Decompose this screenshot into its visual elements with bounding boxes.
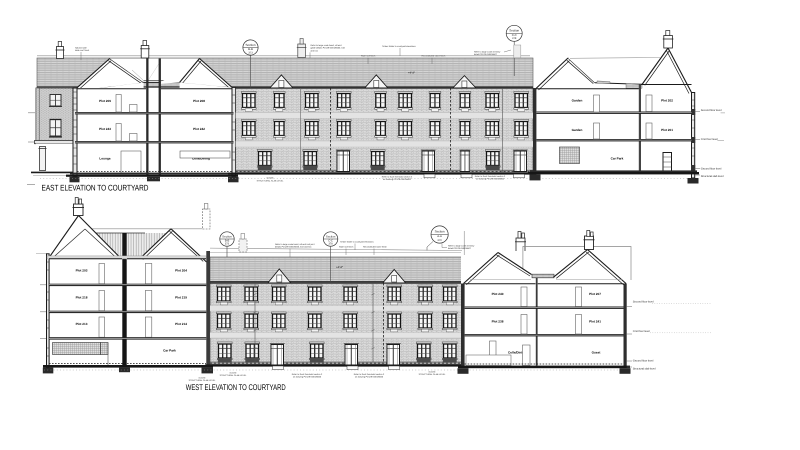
svg-text:Section: Section (222, 234, 232, 238)
svg-text:Refer to large scale chimney: Refer to large scale chimney (448, 245, 475, 248)
svg-text:Plot 201: Plot 201 (661, 128, 673, 132)
svg-text:Lounge: Lounge (99, 157, 110, 161)
svg-text:Ground floor level: Ground floor level (633, 359, 654, 362)
svg-text:Structural slab level: Structural slab level (633, 368, 656, 371)
svg-text:Slate roof finish: Slate roof finish (339, 246, 354, 249)
svg-text:378: 378 (329, 243, 334, 246)
svg-text:Car Park: Car Park (163, 349, 176, 353)
svg-text:31.5mE: 31.5mE (198, 377, 206, 380)
svg-text:Section: Section (435, 230, 445, 234)
svg-text:Plot 214: Plot 214 (175, 322, 187, 326)
svg-text:Plot 243: Plot 243 (99, 127, 111, 131)
svg-text:detail PD128-046/DB507: detail PD128-046/DB507 (448, 247, 472, 250)
svg-text:Plot 209: Plot 209 (99, 99, 111, 103)
svg-text:Structural slab level: Structural slab level (701, 175, 724, 178)
svg-text:STRUCTURAL SLAB LEVEL: STRUCTURAL SLAB LEVEL (257, 179, 285, 182)
svg-text:Plot 203: Plot 203 (76, 269, 88, 273)
svg-text:+4'-2": +4'-2" (408, 72, 416, 75)
svg-text:EAST ELEVATION TO COURTYARD: EAST ELEVATION TO COURTYARD (42, 184, 149, 193)
svg-text:First floor level: First floor level (701, 138, 718, 141)
svg-text:table roof finish: table roof finish (75, 49, 90, 52)
svg-text:Reconstituted stone finish: Reconstituted stone finish (363, 246, 388, 249)
svg-text:Second floor level: Second floor level (633, 301, 654, 304)
svg-text:on drawing PD128-046/DB502: on drawing PD128-046/DB502 (383, 178, 412, 181)
svg-text:A-A: A-A (437, 234, 442, 238)
svg-text:Reconstituted stone finish: Reconstituted stone finish (422, 55, 447, 58)
svg-text:31.5mE: 31.5mE (266, 177, 274, 180)
svg-text:Refer to flush threshold secti: Refer to flush threshold section 3 (475, 175, 506, 178)
svg-text:on drawing PD128-046/DB500: on drawing PD128-046/DB500 (293, 376, 322, 379)
svg-text:gable details PD128-046/DB500,: gable details PD128-046/DB500, 510 (311, 47, 346, 50)
svg-text:Refer to flush threshold secti: Refer to flush threshold section 3 (354, 373, 385, 376)
svg-text:Car Park: Car Park (611, 157, 624, 161)
svg-text:Ground floor level: Ground floor level (701, 167, 722, 170)
svg-text:Plot 242: Plot 242 (193, 127, 205, 131)
svg-text:Plot 218: Plot 218 (76, 296, 88, 300)
svg-text:STRUCTURAL SLAB LEVEL: STRUCTURAL SLAB LEVEL (189, 379, 217, 382)
svg-text:STRUCTURAL SLAB LEVEL: STRUCTURAL SLAB LEVEL (220, 374, 248, 377)
svg-text:Plot 213: Plot 213 (76, 322, 88, 326)
svg-text:Timber folder to courtyard ele: Timber folder to courtyard elevations (382, 45, 416, 48)
svg-text:STRUCTURAL SLAB LEVEL: STRUCTURAL SLAB LEVEL (419, 373, 447, 376)
svg-text:on drawing PD128-046/DB502: on drawing PD128-046/DB502 (476, 178, 505, 181)
svg-text:C-C: C-C (512, 33, 517, 37)
svg-text:31.5mE: 31.5mE (428, 371, 436, 374)
svg-text:373: 373 (225, 243, 230, 246)
svg-text:Garden: Garden (572, 128, 583, 132)
svg-text:Garden: Garden (572, 99, 583, 103)
svg-text:Plot 240: Plot 240 (492, 292, 504, 296)
svg-text:Slate roof finish: Slate roof finish (361, 55, 376, 58)
svg-text:First floor level: First floor level (633, 330, 650, 333)
svg-text:Plot 241: Plot 241 (589, 320, 601, 324)
svg-text:WEST ELEVATION TO COURTYARD: WEST ELEVATION TO COURTYARD (186, 383, 286, 392)
svg-text:B-B: B-B (248, 47, 253, 51)
svg-text:370: 370 (437, 239, 442, 242)
svg-text:Plot 219: Plot 219 (175, 296, 187, 300)
svg-text:Plot 207: Plot 207 (589, 292, 601, 296)
svg-text:Refer to large scale chimney: Refer to large scale chimney (474, 51, 501, 54)
svg-text:373: 373 (248, 51, 253, 54)
svg-text:Plot 204: Plot 204 (175, 269, 187, 273)
svg-text:+4'-2": +4'-2" (336, 266, 344, 269)
svg-text:Refer to flush threshold secti: Refer to flush threshold section 3 (292, 373, 323, 376)
svg-text:Refer to flush threshold secti: Refer to flush threshold section 3 (382, 176, 413, 179)
svg-text:Refer to large scale band, sil: Refer to large scale band, sill and roof… (275, 243, 315, 246)
svg-text:on drawing PD128-046/DB500: on drawing PD128-046/DB500 (355, 376, 384, 379)
svg-text:Refer to large scale band, sil: Refer to large scale band, sill and (311, 44, 343, 47)
svg-text:and 511: and 511 (311, 49, 319, 52)
svg-text:details PD128-046/DB500, 510 a: details PD128-046/DB500, 510 and 511 (275, 246, 312, 249)
svg-text:detail PD128-046/DB507: detail PD128-046/DB507 (474, 53, 498, 56)
svg-text:Timber folder to courtyard ele: Timber folder to courtyard elevations (340, 241, 374, 244)
svg-text:378: 378 (512, 37, 517, 40)
svg-text:Second floor level: Second floor level (701, 109, 722, 112)
svg-text:Guest: Guest (592, 351, 601, 355)
svg-text:31.5mE: 31.5mE (229, 372, 237, 375)
svg-text:Plot 238: Plot 238 (492, 320, 504, 324)
svg-text:Plot 202: Plot 202 (661, 99, 673, 103)
svg-text:Plot 208: Plot 208 (193, 99, 205, 103)
svg-text:Section: Section (326, 234, 336, 238)
